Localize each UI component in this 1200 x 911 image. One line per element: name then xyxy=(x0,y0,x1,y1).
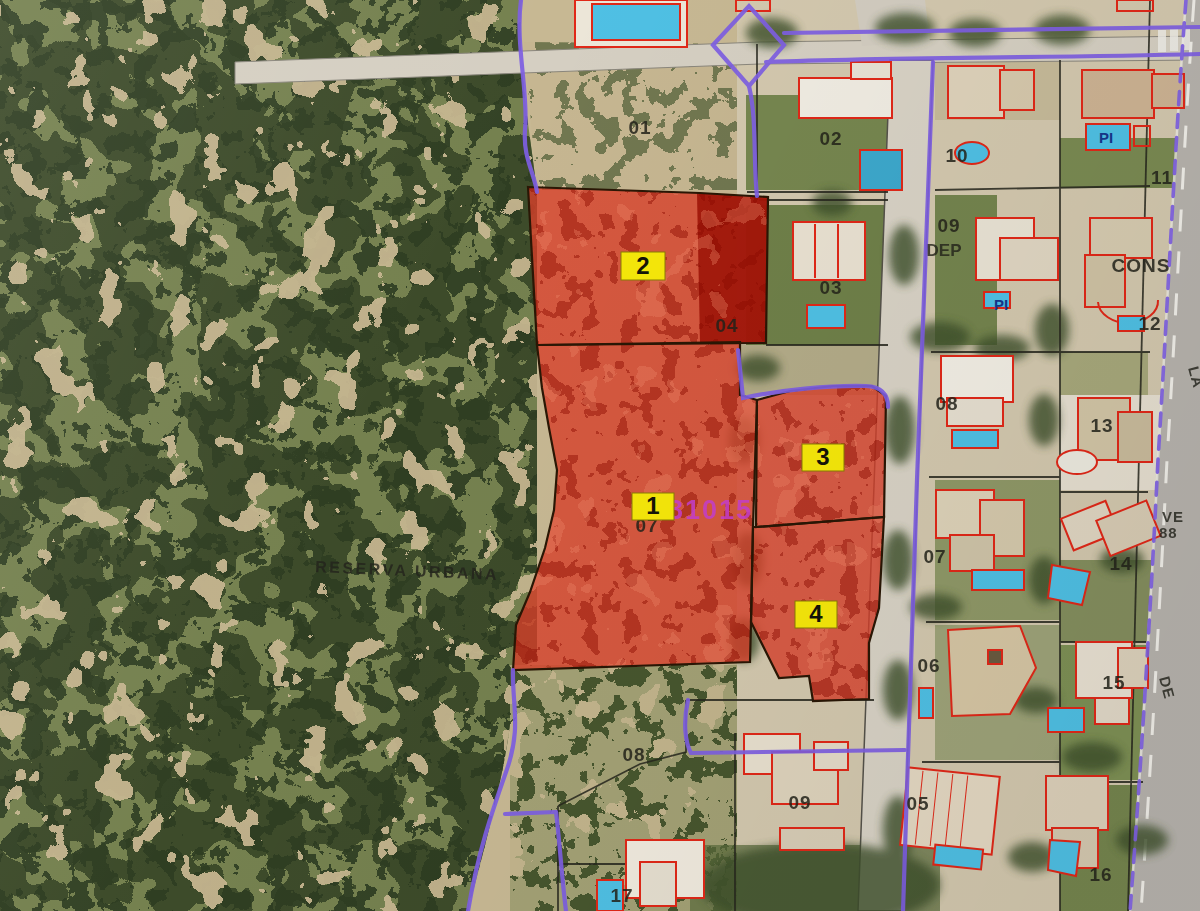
building-lot06-detail xyxy=(988,650,1002,664)
map-canvas: RESERVA URBANA 01 02 03 04 07 31015 10 1… xyxy=(0,0,1200,911)
street-label-88: 88 xyxy=(1159,524,1178,541)
street-label-ve: VE xyxy=(1162,508,1184,525)
building-lot12 xyxy=(1090,218,1152,258)
lot-number-03: 03 xyxy=(819,277,842,298)
lot-number-08-bottom: 08 xyxy=(622,744,645,765)
lot-number-16: 16 xyxy=(1089,864,1112,885)
lot-number-04: 04 xyxy=(715,315,738,336)
plot-badge-1[interactable]: 1 xyxy=(632,492,674,520)
building-lot03 xyxy=(793,222,865,280)
lot-number-11: 11 xyxy=(1151,167,1173,188)
pool-label-pi-1: PI xyxy=(1099,129,1113,146)
building-lot07c xyxy=(950,535,994,571)
cadastral-code: 31015 xyxy=(668,495,753,525)
lot-number-15: 15 xyxy=(1102,672,1125,693)
building-lot10b xyxy=(1000,70,1034,110)
lot-number-17: 17 xyxy=(610,885,633,906)
pool-lot02 xyxy=(860,150,902,190)
lot-number-05: 05 xyxy=(906,793,929,814)
building-lot02b xyxy=(851,62,891,79)
building-lot17b xyxy=(640,862,676,906)
building-lot02 xyxy=(799,78,892,118)
lot-number-08: 08 xyxy=(935,393,958,414)
building-lot13b xyxy=(1118,412,1152,462)
pond-lot13 xyxy=(1057,450,1097,474)
annotation-dep: DEP xyxy=(927,241,962,260)
screenshot-root: RESERVA URBANA 01 02 03 04 07 31015 10 1… xyxy=(0,0,1200,911)
svg-text:4: 4 xyxy=(809,600,823,627)
lot-number-01: 01 xyxy=(628,117,651,138)
pool-lot15 xyxy=(1048,708,1084,732)
svg-text:2: 2 xyxy=(636,252,649,279)
annotation-cons: CONS xyxy=(1112,255,1171,276)
building-lot09b xyxy=(1000,238,1058,280)
lot-number-02: 02 xyxy=(819,128,842,149)
svg-text:1: 1 xyxy=(646,492,659,519)
building-lot16 xyxy=(1046,776,1108,830)
lot-number-10: 10 xyxy=(945,145,968,166)
pool-lot16 xyxy=(1048,840,1080,876)
pool-lot07 xyxy=(972,570,1024,590)
svg-text:3: 3 xyxy=(816,443,829,470)
plot-badge-4[interactable]: 4 xyxy=(795,600,837,628)
pool-lot06 xyxy=(919,688,933,718)
building-lot09-bottom-d xyxy=(780,828,844,850)
lot-number-09: 09 xyxy=(937,215,960,236)
plot-badge-3[interactable]: 3 xyxy=(802,443,844,471)
plot-badge-2[interactable]: 2 xyxy=(621,252,665,280)
pool-lot03 xyxy=(807,305,845,328)
lot-number-13: 13 xyxy=(1090,415,1113,436)
lot-number-14: 14 xyxy=(1109,553,1132,574)
lot-number-09-bottom: 09 xyxy=(788,792,811,813)
pool xyxy=(592,4,680,40)
building-lot10 xyxy=(948,66,1004,118)
lot-number-06: 06 xyxy=(917,655,940,676)
pool-lot08 xyxy=(952,430,998,448)
pool-lot14 xyxy=(1048,565,1090,605)
lot-number-07: 07 xyxy=(923,546,946,567)
pool-label-pi-2: PI xyxy=(994,296,1008,313)
pool-lot05 xyxy=(933,845,983,870)
building-lot09-bottom-c xyxy=(814,742,848,770)
building-lot11 xyxy=(1082,70,1154,118)
lot-number-12: 12 xyxy=(1138,313,1161,334)
building-lot15c xyxy=(1095,698,1129,724)
